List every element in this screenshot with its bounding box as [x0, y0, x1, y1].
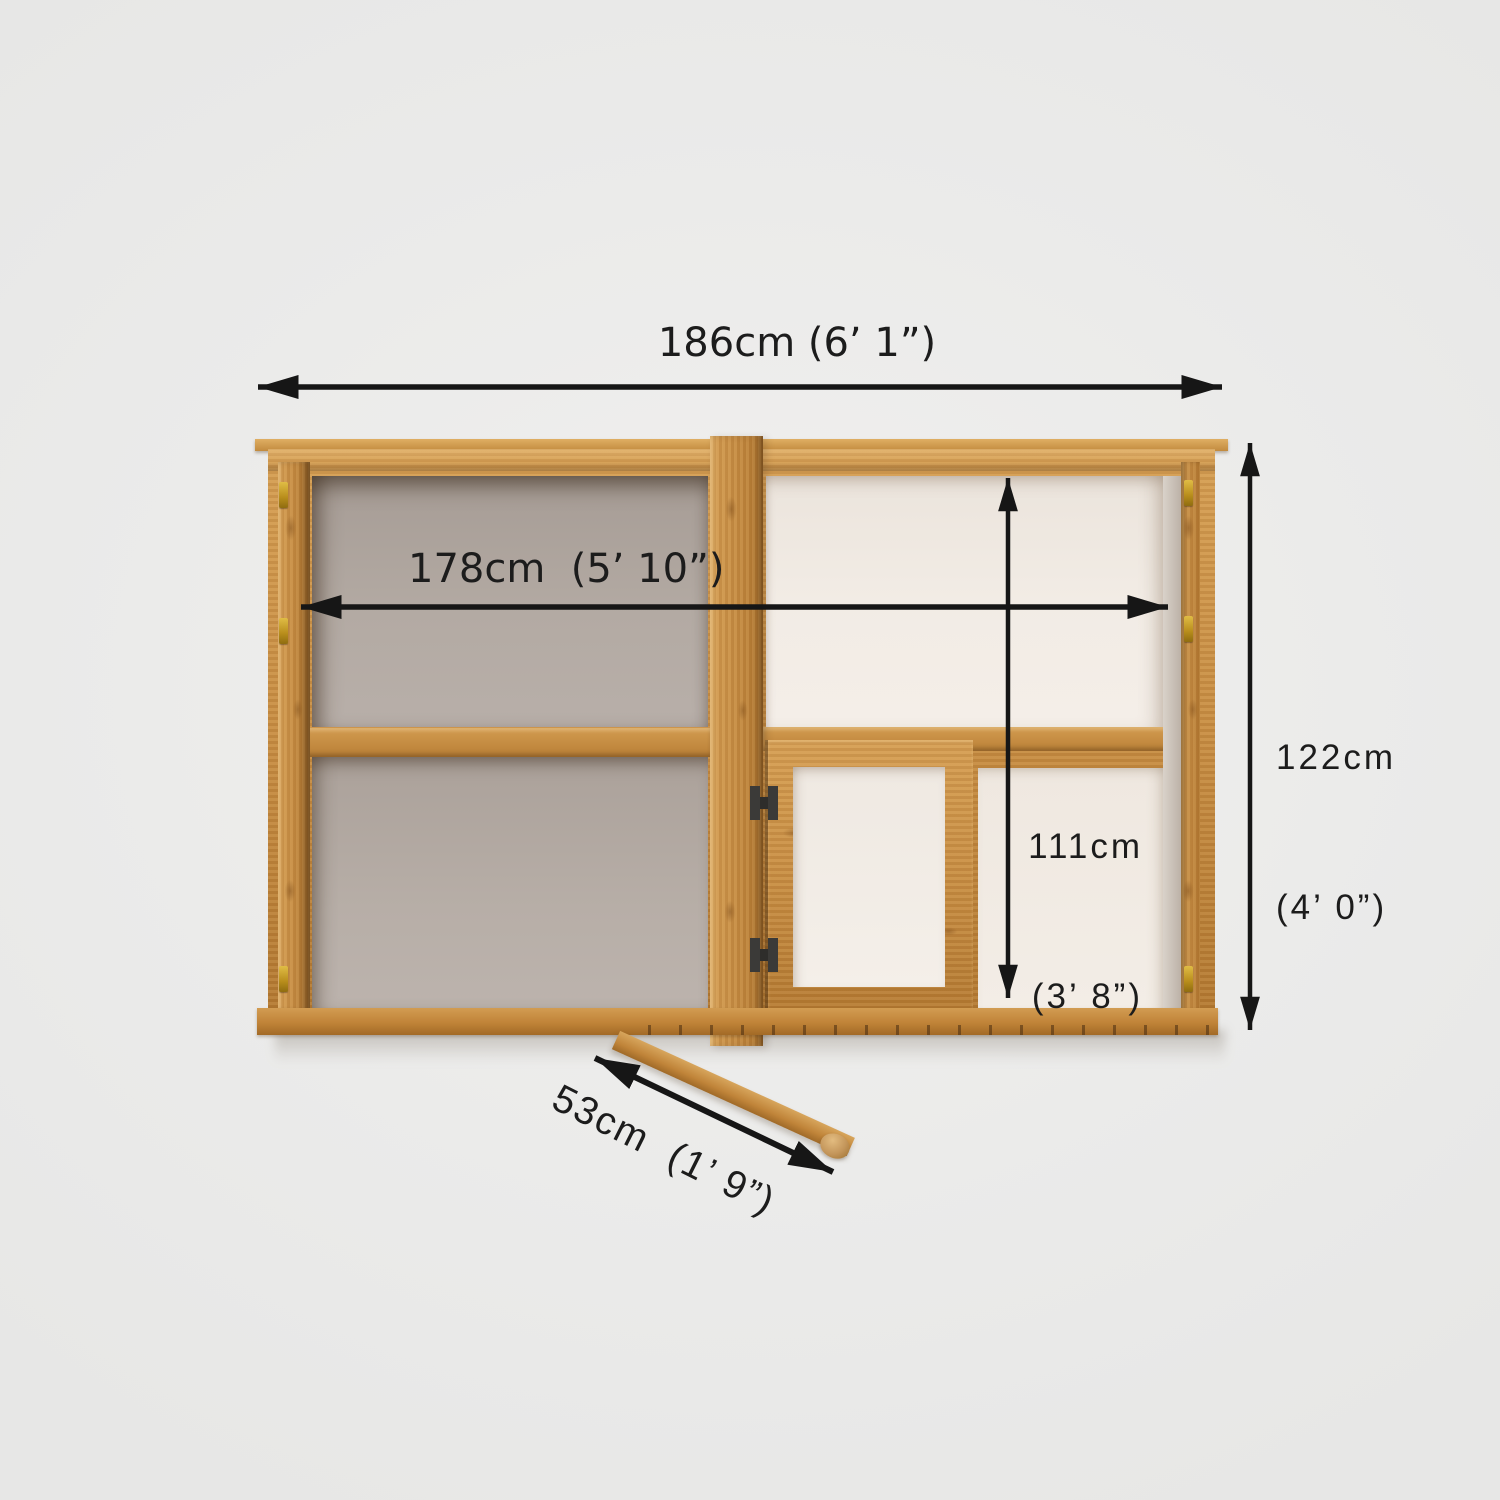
door: [765, 740, 973, 1030]
cold-frame-dimension-diagram: 186cm (6’ 1”) 178cm (5’ 10”) 122cm (4’ 0…: [0, 0, 1500, 1500]
label-internal-height-cm: 111cm: [1028, 822, 1143, 872]
door-panel: [793, 767, 945, 987]
brass-clip: [1184, 480, 1193, 506]
label-total-height: 122cm (4’ 0”): [1276, 633, 1396, 1033]
glazing-panel-top-left: [312, 476, 708, 727]
brass-clip: [279, 618, 288, 644]
glazing-panel-top-right: [766, 476, 1163, 727]
right-post: [1181, 462, 1200, 1012]
label-total-height-cm: 122cm: [1276, 733, 1396, 783]
left-post: [278, 462, 310, 1012]
label-total-width: 186cm (6’ 1”): [658, 320, 936, 366]
brass-clip: [279, 482, 288, 508]
mid-rail-left: [306, 728, 712, 757]
door-hinge-bottom-icon: [750, 938, 778, 972]
label-internal-height-ft: (3’ 8”): [1028, 972, 1143, 1022]
label-internal-height: 111cm (3’ 8”): [1028, 722, 1143, 1122]
brass-clip: [1184, 966, 1193, 992]
door-hinge-top-icon: [750, 786, 778, 820]
label-internal-width: 178cm (5’ 10”): [408, 546, 724, 592]
brass-clip: [1184, 616, 1193, 642]
label-total-height-ft: (4’ 0”): [1276, 883, 1396, 933]
glazing-panel-bottom-left: [312, 757, 708, 1008]
brass-clip: [279, 966, 288, 992]
right-frame-return: [1163, 476, 1183, 1010]
